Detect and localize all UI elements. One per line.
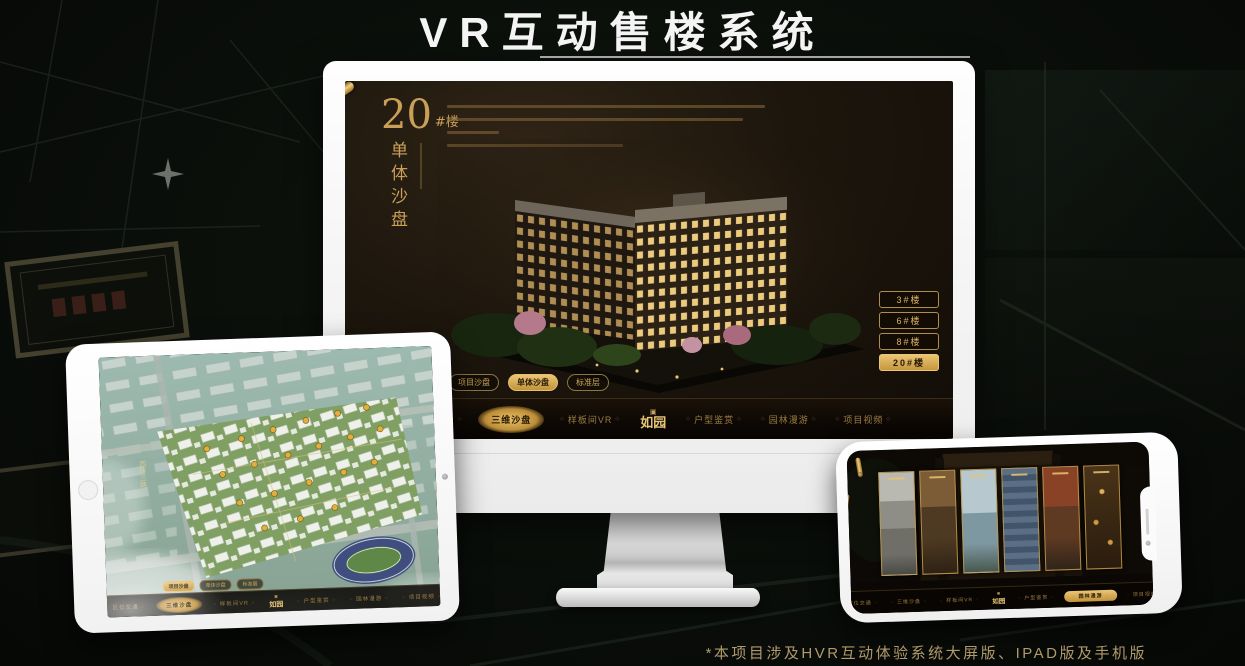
nav-garden-roam[interactable]: 园林漫游 <box>347 593 392 603</box>
floor-button-6[interactable]: 6#楼 <box>879 312 939 329</box>
scene-card[interactable] <box>919 470 958 575</box>
nav-project-video[interactable]: 项目视频 <box>833 413 895 426</box>
floor-button-group: 3#楼 6#楼 8#楼 20#楼 <box>879 291 939 371</box>
nav-showroom-vr[interactable]: 样板间VR <box>210 598 258 608</box>
nav-3d-sandbox[interactable]: 三维沙盘 <box>478 406 544 433</box>
scroll-icon[interactable] <box>345 81 356 108</box>
phone-screen: 区位交通 三维沙盘 样板间VR ▣ 如园 户型鉴赏 园林漫游 项目视频 <box>847 442 1154 614</box>
nav-location-traffic[interactable]: 区位交通 <box>847 599 881 607</box>
subtab-project-sandbox[interactable]: 项目沙盘 <box>162 580 194 592</box>
nav-garden-roam[interactable]: 园林漫游 <box>758 413 820 426</box>
logo-seal-icon: ▣ <box>274 595 278 599</box>
nav-floorplan[interactable]: 户型鉴赏 <box>294 595 339 605</box>
footnote: *本项目涉及HVR互动体验系统大屏版、IPAD版及手机版 <box>706 642 1147 663</box>
subtab-standard-floor[interactable]: 标准层 <box>236 578 263 590</box>
nav-showroom-vr[interactable]: 样板间VR <box>937 595 982 603</box>
nav-3d-sandbox[interactable]: 三维沙盘 <box>156 596 203 614</box>
floor-button-20[interactable]: 20#楼 <box>879 354 939 371</box>
phone-device: 区位交通 三维沙盘 样板间VR ▣ 如园 户型鉴赏 园林漫游 项目视频 <box>835 432 1183 624</box>
subtab-standard-floor[interactable]: 标准层 <box>567 374 609 391</box>
scene-card[interactable] <box>1001 467 1040 572</box>
logo-seal-icon: ▣ <box>997 592 1000 596</box>
stage: VR互动售楼系统 20 #楼 单体沙盘 <box>0 0 1245 666</box>
home-button[interactable] <box>78 479 99 500</box>
subtab-project-sandbox[interactable]: 项目沙盘 <box>449 374 499 391</box>
building-3d-render <box>437 139 869 393</box>
floor-button-3[interactable]: 3#楼 <box>879 291 939 308</box>
floor-button-8[interactable]: 8#楼 <box>879 333 939 350</box>
aerial-masterplan-render: 西环三路 <box>99 346 441 617</box>
camera-icon <box>1145 540 1150 545</box>
nav-showroom-vr[interactable]: 样板间VR <box>557 413 623 426</box>
monitor-stand-neck <box>597 513 733 591</box>
scene-card[interactable] <box>1042 466 1081 571</box>
nav-project-video[interactable]: 项目视频 <box>1124 590 1154 598</box>
nav-project-video[interactable]: 项目视频 <box>399 591 440 601</box>
scene-card[interactable] <box>1083 465 1122 570</box>
monitor-stand-base <box>556 588 760 607</box>
scene-card[interactable] <box>960 468 999 573</box>
brand-logo: ▣ 如园 <box>269 594 283 607</box>
title-underline <box>540 56 970 58</box>
brand-logo: ▣ 如园 <box>640 408 666 430</box>
nav-floorplan[interactable]: 户型鉴赏 <box>683 413 745 426</box>
brand-logo: ▣ 如园 <box>992 592 1005 604</box>
camera-icon <box>442 473 448 479</box>
logo-seal-icon: ▣ <box>650 408 657 415</box>
tablet-device: 西环三路 项目沙盘 单体沙盘 标准层 区位交通 三维沙盘 样板间VR ▣ 如园 … <box>65 331 460 633</box>
speaker-icon <box>1145 508 1149 534</box>
tablet-screen: 西环三路 项目沙盘 单体沙盘 标准层 区位交通 三维沙盘 样板间VR ▣ 如园 … <box>99 346 441 617</box>
monitor-subtabs: 项目沙盘 单体沙盘 标准层 <box>449 374 609 391</box>
sandbox-vertical-title: 单体沙盘 <box>385 141 410 233</box>
nav-3d-sandbox[interactable]: 三维沙盘 <box>888 597 930 605</box>
page-title: VR互动售楼系统 <box>0 0 1245 58</box>
building-number: 20 <box>381 97 432 133</box>
phone-notch <box>1140 486 1157 560</box>
scene-card[interactable] <box>878 471 917 576</box>
nav-garden-roam[interactable]: 园林漫游 <box>1064 589 1117 602</box>
nav-location-traffic[interactable]: 区位交通 <box>103 602 148 612</box>
subtab-single-sandbox[interactable]: 单体沙盘 <box>508 374 558 391</box>
nav-floorplan[interactable]: 户型鉴赏 <box>1015 593 1057 601</box>
decor-pinyin-bars <box>410 133 422 233</box>
subtab-single-sandbox[interactable]: 单体沙盘 <box>199 579 231 591</box>
